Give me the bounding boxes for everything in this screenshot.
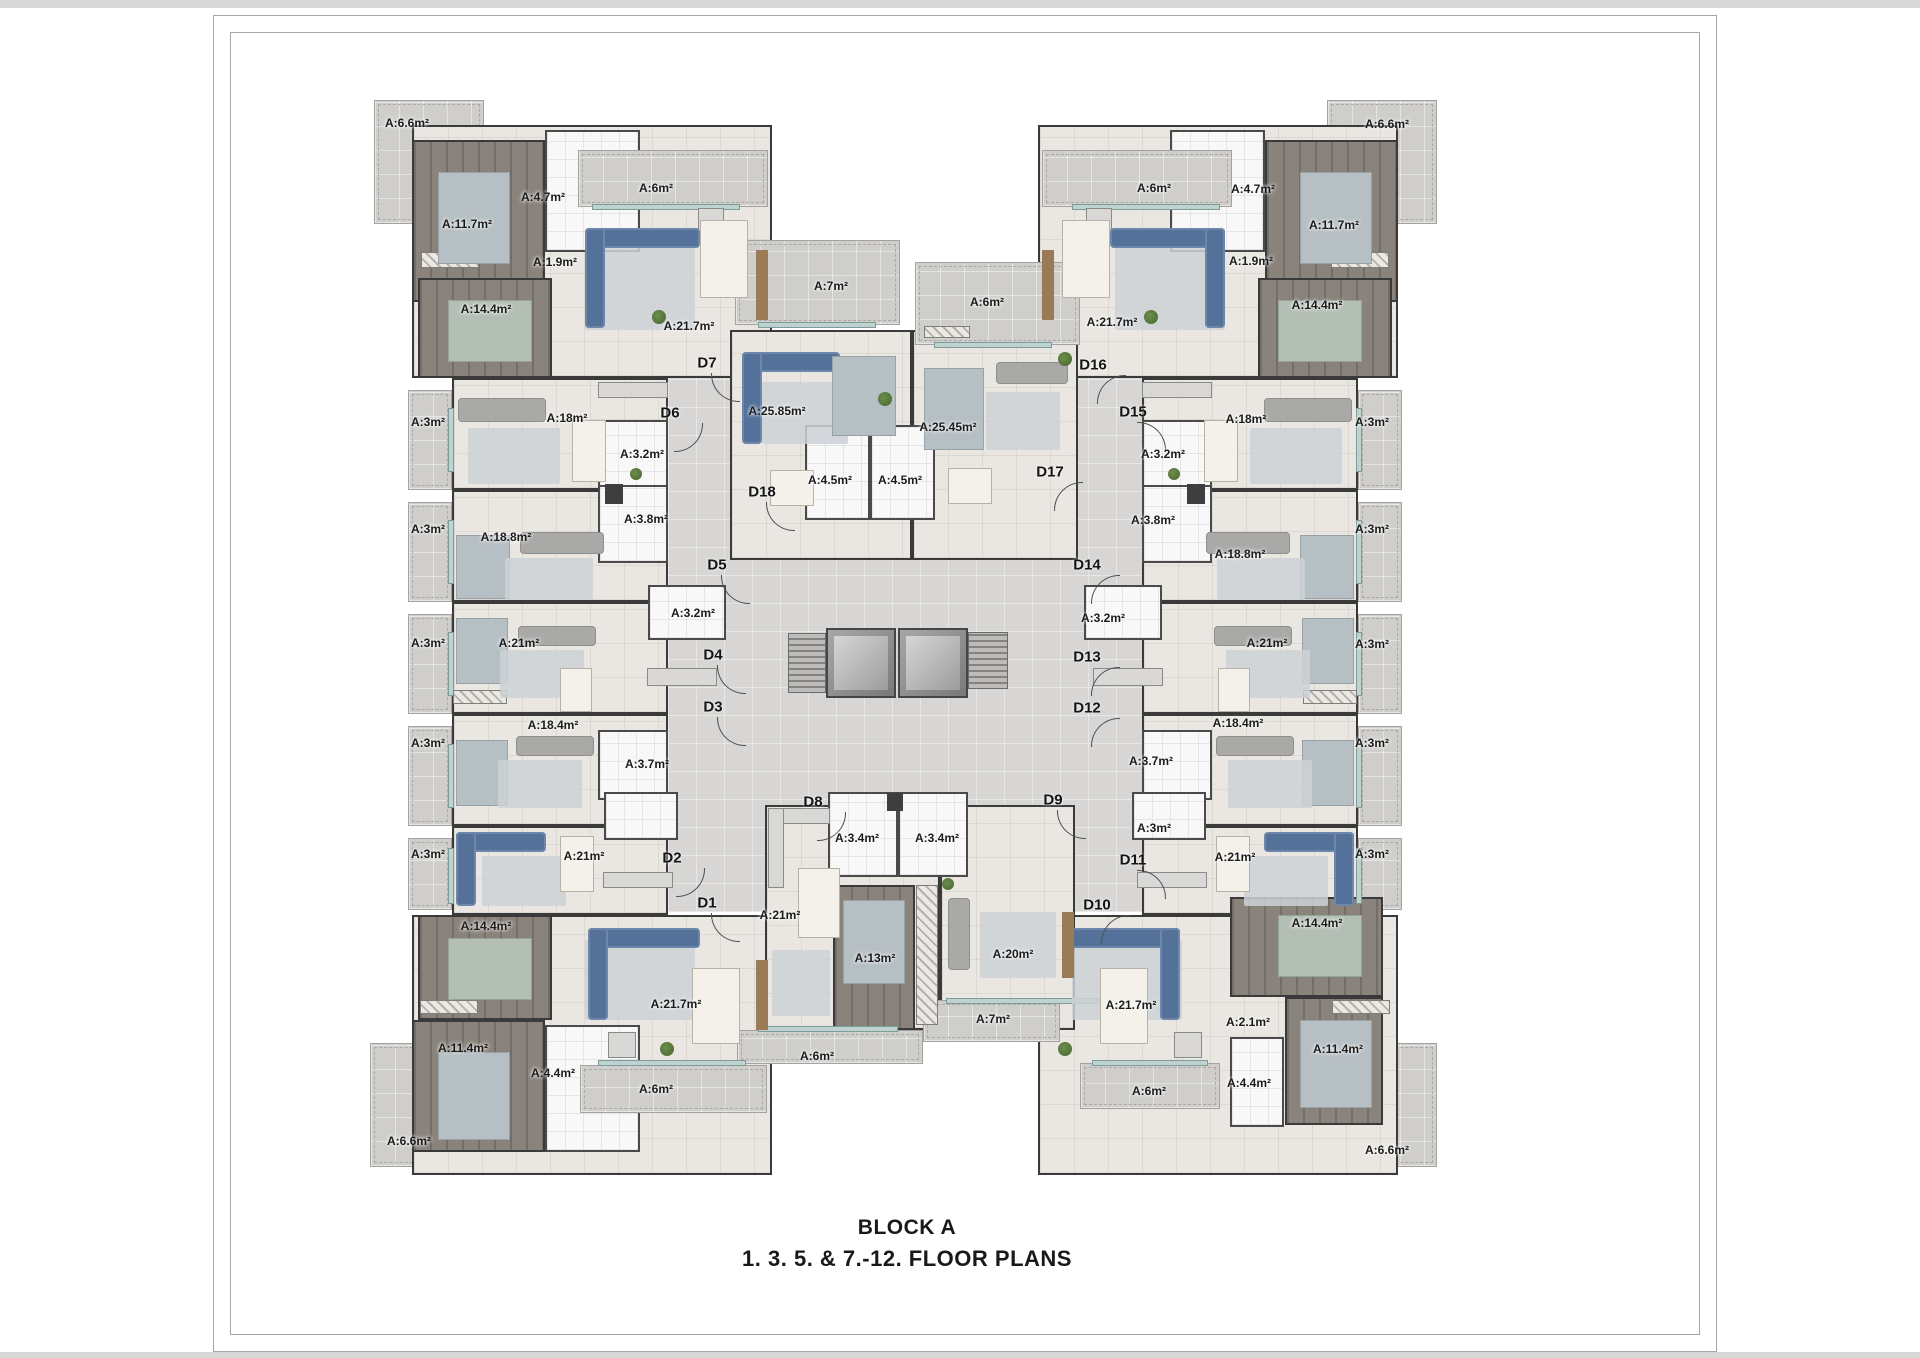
bed	[448, 938, 532, 1000]
area-label: A:21m²	[564, 849, 605, 863]
kitchen-counter	[1142, 382, 1212, 398]
plant-icon	[1058, 1042, 1072, 1056]
balcony	[408, 614, 452, 714]
area-label: A:3.7m²	[625, 757, 669, 771]
area-label: A:4.7m²	[521, 190, 565, 204]
area-label: A:14.4m²	[1292, 298, 1343, 312]
wardrobe	[420, 1000, 478, 1014]
floors-subtitle: 1. 3. 5. & 7.-12. FLOOR PLANS	[742, 1246, 1072, 1272]
door-label: D16	[1079, 357, 1107, 374]
area-label: A:14.4m²	[461, 919, 512, 933]
kitchen-counter	[603, 872, 673, 888]
table	[1204, 420, 1238, 482]
table	[1218, 668, 1250, 712]
balcony	[408, 502, 452, 602]
area-label: A:3.4m²	[915, 831, 959, 845]
rug	[772, 950, 830, 1016]
sofa	[516, 736, 594, 756]
door-label: D6	[660, 405, 679, 422]
table	[560, 668, 592, 712]
rug	[498, 760, 582, 808]
area-label: A:1.9m²	[1229, 254, 1273, 268]
kitchen-counter	[1174, 1032, 1202, 1058]
door-label: D2	[662, 850, 681, 867]
staircase	[788, 633, 826, 693]
plant-icon	[1168, 468, 1180, 480]
balcony	[580, 1065, 767, 1113]
area-label: A:18.8m²	[1215, 547, 1266, 561]
balcony	[1358, 614, 1402, 714]
table	[1216, 836, 1250, 892]
appliance	[1187, 484, 1205, 504]
wardrobe	[1303, 690, 1357, 704]
door-label: D7	[697, 355, 716, 372]
rug	[1217, 558, 1305, 600]
area-label: A:4.4m²	[1227, 1076, 1271, 1090]
area-label: A:3.2m²	[1141, 447, 1185, 461]
area-label: A:18.4m²	[1213, 716, 1264, 730]
area-label: A:4.5m²	[878, 473, 922, 487]
area-label: A:13m²	[855, 951, 896, 965]
balcony	[408, 390, 452, 490]
table	[560, 836, 594, 892]
balcony	[1358, 502, 1402, 602]
block-name: BLOCK A	[742, 1216, 1072, 1240]
door-label: D18	[748, 484, 776, 501]
area-label: A:3m²	[411, 636, 445, 650]
bed	[843, 900, 905, 984]
sideboard	[756, 960, 768, 1030]
door-label: D8	[803, 794, 822, 811]
area-label: A:18m²	[1226, 412, 1267, 426]
area-label: A:6m²	[970, 295, 1004, 309]
area-label: A:14.4m²	[461, 302, 512, 316]
bed	[924, 368, 984, 450]
kitchen-counter	[768, 808, 784, 888]
door-label: D1	[697, 895, 716, 912]
window	[448, 408, 454, 472]
area-label: A:14.4m²	[1292, 916, 1343, 930]
sofa	[456, 832, 476, 906]
wardrobe	[453, 690, 507, 704]
area-label: A:3.2m²	[620, 447, 664, 461]
area-label: A:3m²	[1355, 637, 1389, 651]
bed	[456, 535, 510, 599]
door-label: D17	[1036, 464, 1064, 481]
area-label: A:20m²	[993, 947, 1034, 961]
area-label: A:4.4m²	[531, 1066, 575, 1080]
area-label: A:6m²	[800, 1049, 834, 1063]
sideboard	[1062, 912, 1074, 978]
sofa	[1205, 228, 1225, 328]
area-label: A:3m²	[1355, 415, 1389, 429]
kitchen-counter	[647, 668, 717, 686]
door-label: D15	[1119, 404, 1147, 421]
area-label: A:11.4m²	[438, 1041, 488, 1055]
sofa	[996, 362, 1068, 384]
area-label: A:3m²	[411, 522, 445, 536]
bathroom	[604, 792, 678, 840]
area-label: A:4.5m²	[808, 473, 852, 487]
rug	[482, 856, 566, 906]
sofa	[948, 898, 970, 970]
area-label: A:3.2m²	[1081, 611, 1125, 625]
area-label: A:3.4m²	[835, 831, 879, 845]
plant-icon	[1058, 352, 1072, 366]
area-label: A:25.85m²	[748, 404, 805, 418]
area-label: A:3.7m²	[1129, 754, 1173, 768]
door-label: D14	[1073, 557, 1101, 574]
area-label: A:21.7m²	[664, 319, 715, 333]
plant-icon	[660, 1042, 674, 1056]
area-label: A:21m²	[499, 636, 540, 650]
area-label: A:21.7m²	[1087, 315, 1138, 329]
table	[1062, 220, 1110, 298]
elevator	[898, 628, 968, 698]
table	[700, 220, 748, 298]
wardrobe	[916, 885, 938, 1025]
area-label: A:6m²	[639, 181, 673, 195]
window	[758, 322, 876, 328]
area-label: A:7m²	[976, 1012, 1010, 1026]
sofa	[1264, 398, 1352, 422]
floor-plan-canvas: A:6.6m²A:11.7m²A:4.7m²A:1.9m²A:6m²A:14.4…	[0, 0, 1920, 1358]
window	[598, 1060, 746, 1066]
window	[448, 632, 454, 696]
table	[948, 468, 992, 504]
table	[798, 868, 840, 938]
rug	[505, 558, 593, 600]
appliance	[887, 793, 903, 811]
door-label: D12	[1073, 700, 1101, 717]
window	[448, 744, 454, 808]
area-label: A:3.8m²	[1131, 513, 1175, 527]
window	[758, 1026, 898, 1032]
plant-icon	[942, 878, 954, 890]
area-label: A:11.7m²	[1309, 218, 1359, 232]
area-label: A:6.6m²	[1365, 1143, 1409, 1157]
area-label: A:25.45m²	[919, 420, 976, 434]
sofa	[1160, 928, 1180, 1020]
rug	[980, 912, 1056, 978]
balcony	[1042, 150, 1232, 207]
plant-icon	[878, 392, 892, 406]
floor-plan-page: A:6.6m²A:11.7m²A:4.7m²A:1.9m²A:6m²A:14.4…	[0, 0, 1920, 1358]
elevator	[826, 628, 896, 698]
rug	[1244, 856, 1328, 906]
wardrobe	[1332, 1000, 1390, 1014]
sofa	[520, 532, 604, 554]
area-label: A:18m²	[547, 411, 588, 425]
door-label: D5	[707, 557, 726, 574]
sofa	[588, 928, 608, 1020]
wardrobe	[924, 326, 970, 338]
appliance	[605, 484, 623, 504]
area-label: A:11.7m²	[442, 217, 492, 231]
door-label: D4	[703, 647, 722, 664]
area-label: A:4.7m²	[1231, 182, 1275, 196]
area-label: A:6.6m²	[385, 116, 429, 130]
area-label: A:7m²	[814, 279, 848, 293]
door-label: D13	[1073, 649, 1101, 666]
area-label: A:21.7m²	[1106, 998, 1157, 1012]
window	[448, 848, 454, 904]
area-label: A:3.8m²	[624, 512, 668, 526]
balcony	[578, 150, 768, 207]
sofa	[1334, 832, 1354, 906]
area-label: A:18.4m²	[528, 718, 579, 732]
area-label: A:18.8m²	[481, 530, 532, 544]
bed	[1300, 1020, 1372, 1108]
plan-title: BLOCK A 1. 3. 5. & 7.-12. FLOOR PLANS	[742, 1216, 1072, 1272]
door-label: D9	[1043, 792, 1062, 809]
sofa	[1216, 736, 1294, 756]
bed	[1300, 535, 1354, 599]
plant-icon	[630, 468, 642, 480]
area-label: A:21m²	[1247, 636, 1288, 650]
sofa	[458, 398, 546, 422]
area-label: A:2.1m²	[1226, 1015, 1270, 1029]
area-label: A:11.4m²	[1313, 1042, 1363, 1056]
sofa	[585, 228, 605, 328]
area-label: A:21.7m²	[651, 997, 702, 1011]
area-label: A:3m²	[1355, 522, 1389, 536]
door-label: D3	[703, 699, 722, 716]
door-label: D10	[1083, 897, 1111, 914]
area-label: A:3m²	[1355, 847, 1389, 861]
area-label: A:3.2m²	[671, 606, 715, 620]
window	[1092, 1060, 1208, 1066]
area-label: A:1.9m²	[533, 255, 577, 269]
rug	[1228, 760, 1312, 808]
area-label: A:6m²	[1137, 181, 1171, 195]
area-label: A:6.6m²	[1365, 117, 1409, 131]
area-label: A:6m²	[1132, 1084, 1166, 1098]
area-label: A:21m²	[1215, 850, 1256, 864]
area-label: A:21m²	[760, 908, 801, 922]
area-label: A:6m²	[639, 1082, 673, 1096]
staircase	[968, 632, 1008, 689]
sideboard	[1042, 250, 1054, 320]
door-label: D11	[1120, 852, 1147, 869]
kitchen-counter	[608, 1032, 636, 1058]
area-label: A:3m²	[411, 847, 445, 861]
sideboard	[756, 250, 768, 320]
table	[572, 420, 606, 482]
rug	[1250, 428, 1342, 484]
area-label: A:3m²	[411, 736, 445, 750]
sofa	[742, 352, 762, 444]
window	[1356, 744, 1362, 808]
bed	[438, 1052, 510, 1140]
window	[448, 520, 454, 584]
balcony	[1358, 390, 1402, 490]
area-label: A:3m²	[1137, 821, 1171, 835]
area-label: A:6.6m²	[387, 1134, 431, 1148]
plant-icon	[1144, 310, 1158, 324]
area-label: A:3m²	[411, 415, 445, 429]
rug	[986, 392, 1060, 450]
area-label: A:3m²	[1355, 736, 1389, 750]
rug	[468, 428, 560, 484]
window	[934, 342, 1052, 348]
kitchen-counter	[598, 382, 668, 398]
